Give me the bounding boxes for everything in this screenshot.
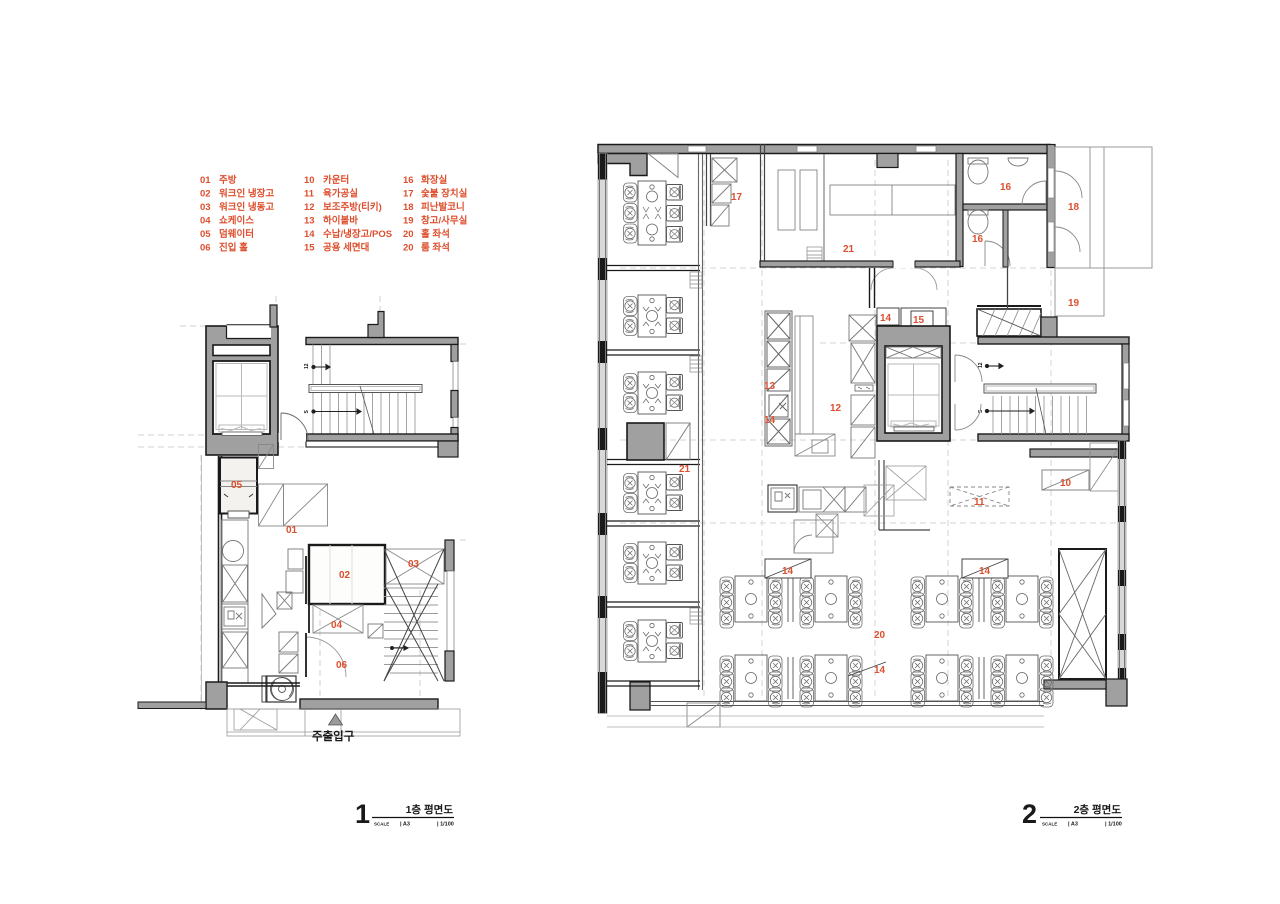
svg-text:덤웨이터: 덤웨이터 [219,228,254,240]
svg-text:03: 03 [408,559,420,570]
svg-text:룸 좌석: 룸 좌석 [421,242,450,254]
svg-text:15: 15 [304,243,315,254]
svg-text:06: 06 [200,243,211,254]
svg-text:21: 21 [679,464,691,475]
svg-text:12: 12 [830,403,842,414]
svg-text:피난발코니: 피난발코니 [421,201,465,213]
svg-text:05: 05 [231,480,243,491]
svg-text:1: 1 [355,799,370,829]
svg-text:2층 평면도: 2층 평면도 [1074,803,1122,816]
svg-text:숯불 장치실: 숯불 장치실 [421,188,468,200]
svg-text:카운터: 카운터 [323,174,349,186]
svg-text:화장실: 화장실 [421,174,447,186]
svg-text:주방: 주방 [219,174,237,186]
svg-text:12: 12 [304,202,315,213]
svg-text:주출입구: 주출입구 [312,729,355,743]
svg-text:10: 10 [1060,478,1072,489]
svg-text:02: 02 [339,570,351,581]
svg-text:01: 01 [200,175,211,186]
svg-text:18: 18 [1068,202,1080,213]
svg-text:13: 13 [764,381,776,392]
svg-text:17: 17 [731,192,743,203]
svg-text:14: 14 [979,566,991,577]
svg-text:| 1/100: | 1/100 [1105,822,1122,828]
svg-text:14: 14 [874,665,886,676]
svg-text:16: 16 [403,175,414,186]
svg-text:14: 14 [782,566,794,577]
svg-text:20: 20 [403,243,414,254]
svg-text:14: 14 [304,229,315,240]
svg-text:워크인 냉장고: 워크인 냉장고 [219,188,274,200]
svg-text:홀 좌석: 홀 좌석 [421,228,450,240]
svg-text:17: 17 [403,189,414,200]
svg-text:육가공실: 육가공실 [323,188,358,200]
svg-text:14: 14 [880,313,892,324]
svg-text:21: 21 [843,244,855,255]
svg-text:12: 12 [978,362,984,368]
svg-text:04: 04 [200,216,211,227]
svg-text:06: 06 [336,660,348,671]
svg-text:10: 10 [304,175,315,186]
svg-text:11: 11 [974,497,985,508]
svg-text:보조주방(티키): 보조주방(티키) [323,201,382,213]
svg-text:창고/사무실: 창고/사무실 [421,215,468,227]
svg-text:| A3: | A3 [400,822,410,828]
svg-text:03: 03 [200,202,211,213]
svg-text:15: 15 [913,315,925,326]
svg-text:진입 홀: 진입 홀 [219,242,248,254]
svg-text:04: 04 [331,620,343,631]
svg-text:SCALE: SCALE [374,822,389,827]
svg-text:11: 11 [304,189,315,200]
svg-text:수납/냉장고/POS: 수납/냉장고/POS [323,228,392,240]
svg-text:01: 01 [286,525,298,536]
svg-text:16: 16 [1000,182,1012,193]
svg-text:12: 12 [304,363,310,369]
svg-text:공용 세면대: 공용 세면대 [323,242,369,254]
svg-text:19: 19 [403,216,414,227]
svg-text:18: 18 [403,202,414,213]
svg-text:2: 2 [1022,799,1037,829]
svg-text:05: 05 [200,229,211,240]
svg-text:| 1/100: | 1/100 [437,822,454,828]
svg-text:| A3: | A3 [1068,822,1078,828]
svg-text:13: 13 [304,216,315,227]
svg-text:1층 평면도: 1층 평면도 [406,803,454,816]
svg-text:쇼케이스: 쇼케이스 [219,215,254,227]
svg-text:하이볼바: 하이볼바 [323,215,358,227]
svg-text:20: 20 [874,630,886,641]
svg-text:19: 19 [1068,298,1080,309]
svg-text:SCALE: SCALE [1042,822,1057,827]
svg-text:워크인 냉동고: 워크인 냉동고 [219,201,274,213]
svg-text:20: 20 [403,229,414,240]
svg-text:02: 02 [200,189,211,200]
svg-text:16: 16 [972,234,984,245]
svg-text:14: 14 [764,415,776,426]
